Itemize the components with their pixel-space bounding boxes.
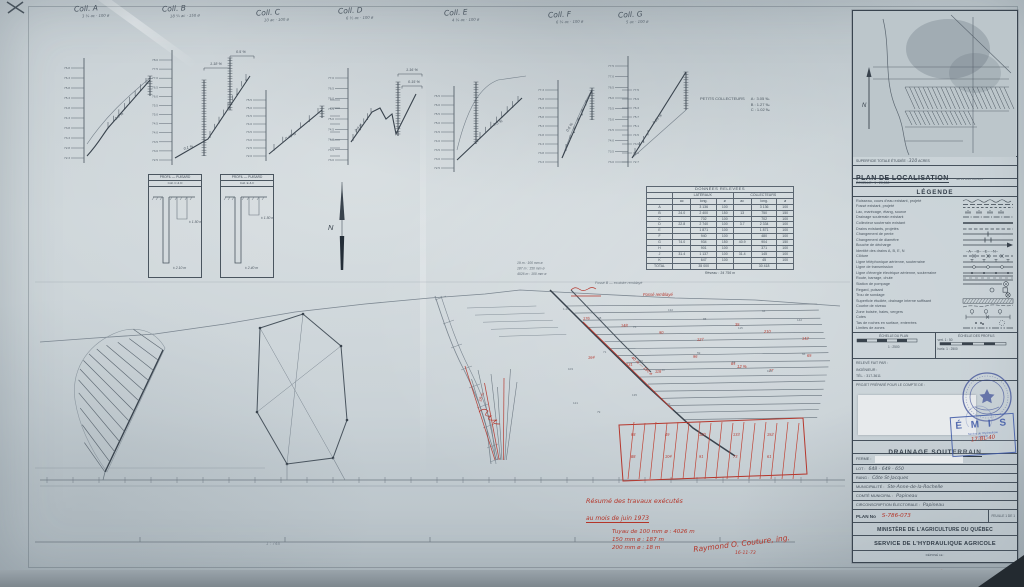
pencil-measurement: 121 — [573, 401, 578, 405]
right-lateral-ext — [475, 313, 545, 315]
elevation-tick-label: 76.8 — [538, 97, 544, 101]
drawing-shape — [1009, 299, 1012, 303]
legend-label: Station de pompage — [856, 282, 962, 286]
redacted-farm-name — [875, 456, 963, 463]
legend-label: Zone boisée, haies, vergers — [856, 310, 962, 314]
elevation-tick-label: 76.0 — [608, 96, 614, 100]
elevation-tick-label: 75.5 — [152, 103, 158, 107]
elevation-tick-label: 75.3 — [64, 96, 70, 100]
elevation-tick-label: 73.5 — [608, 149, 614, 153]
scanned-drainage-plan-sheet: { "profiles": { "charts": [ {"label":"Co… — [0, 0, 1024, 587]
red-block-drain — [628, 422, 634, 479]
red-block-drain — [683, 423, 689, 479]
drawing-shape — [1000, 299, 1003, 303]
pencil-measurement: 1.26 — [563, 307, 569, 311]
sheet-bottom-edge — [0, 570, 1024, 587]
lateral-node — [129, 102, 130, 103]
lateral-node — [227, 108, 228, 109]
elevation-tick-label: 73.0 — [152, 149, 158, 153]
red-measurement: 133 — [733, 432, 741, 437]
legend-label: Collecteur souterrain existant — [856, 221, 962, 225]
right-lateral-drain — [670, 403, 821, 405]
note-item: A : 3.05 ‰ — [751, 96, 770, 102]
elevation-tick-label: 74.8 — [64, 106, 70, 110]
plan-number-value: S-786-073 — [882, 513, 989, 519]
red-block-drain — [672, 422, 678, 479]
drawing-shape — [995, 259, 998, 262]
legend-label: Changement de diamètre — [856, 238, 962, 242]
legend-label: Courbe de niveau — [856, 304, 962, 308]
elevation-tick-label: 75.5 — [246, 98, 252, 102]
middle-field-outline — [257, 314, 347, 464]
drawing-shape — [976, 210, 982, 213]
localisation-map: N — [853, 11, 1017, 157]
survey-point — [340, 345, 343, 348]
lateral-node — [501, 117, 502, 118]
pencil-measurement: 115 — [738, 326, 743, 330]
ferme-label: FERME : — [856, 457, 871, 461]
drawing-shape — [987, 210, 993, 213]
red-measurement: 61 — [767, 454, 772, 459]
depose-row: DÉPOSÉ LE : — [853, 551, 1017, 560]
elevation-tick-label: 75.3 — [538, 124, 544, 128]
legend-label: Superficie étudiée, drainage interne suf… — [856, 299, 962, 303]
left-lateral-drain — [80, 369, 129, 421]
red-block-drain — [705, 423, 711, 479]
small-collectors-note: PETITS COLLECTEURS A : 3.05 ‰ B : 1.27 ‰… — [700, 96, 770, 113]
grade-label: 1.16 % — [406, 68, 418, 72]
circonscription-label: CIRCONSCRIPTION ÉLECTORALE : — [856, 503, 920, 507]
right-lateral-ext — [483, 320, 553, 322]
collector-profile-line — [351, 94, 416, 142]
elevation-tick-label: 73.5 — [434, 148, 440, 152]
middle-field-diagonals — [257, 314, 341, 464]
elevation-tick-label: 75.0 — [328, 117, 334, 121]
grade-label: 0.6 % — [565, 122, 574, 133]
pencil-scale-note: 1 : 744 — [266, 541, 280, 546]
elevation-tick-label: 75.5 — [434, 112, 440, 116]
lateral-node — [479, 137, 480, 138]
elevation-tick-label: 75.8 — [538, 115, 544, 119]
left-lateral-drain — [79, 380, 125, 431]
municipalite-row: MUNICIPALITÉ :Ste-Anne-de-la-Rochelle — [853, 483, 1017, 492]
drawing-shape — [1007, 259, 1010, 262]
circonscription-value: Papineau — [923, 503, 944, 508]
profile-scale-horiz: horiz. 1 : 2500 — [938, 347, 1016, 351]
elevation-tick-label: 74.5 — [608, 128, 614, 132]
drawing-shape — [991, 299, 994, 303]
dimension-bracket — [398, 74, 422, 77]
drawing-shape — [983, 259, 986, 262]
ferme-row: FERME : — [853, 454, 1017, 465]
elevation-tick-label: 76.3 — [64, 76, 70, 80]
legend-label: Ligne d'énergie électrique aérienne, sou… — [856, 271, 962, 275]
pencil-measurement: 103 — [568, 367, 573, 371]
right-lateral-drain — [583, 318, 821, 320]
legend-label: Drains existants, projetés — [856, 227, 962, 231]
grade-label: 0.5 % — [493, 119, 504, 127]
red-measurement: 120 — [699, 432, 707, 437]
survey-point — [302, 313, 305, 316]
red-measurement: 127 — [697, 337, 705, 342]
elevation-tick-label: 75.8 — [64, 86, 70, 90]
collector-profile-line — [562, 90, 592, 158]
red-block-drain — [782, 422, 788, 479]
legend-label: Ligne de transmission — [856, 265, 962, 269]
plan-number-row: PLAN No S-786-073 FEUILLE 1 DE 1 — [853, 510, 1017, 523]
elevation-tick-label: 72.3 — [64, 156, 70, 160]
pencil-note-line: 187 m : 150 mm ø — [517, 267, 545, 271]
pencil-ditch-note: Fossé B — exutoire remblayé — [595, 281, 642, 285]
north-label: N — [328, 223, 334, 232]
drawing-shape — [982, 299, 985, 303]
title-block-panel: N SUPERFICIE TOTALE ÉTUDIÉE : 310 ACRES … — [852, 10, 1018, 563]
elevation-tick-label: 77.3 — [538, 88, 544, 92]
elevation-tick-label: 72.5 — [434, 166, 440, 170]
red-measurement: 90 — [659, 330, 664, 335]
drawing-shape — [963, 305, 1013, 307]
drawing-shape — [973, 299, 976, 303]
right-lateral-drain — [675, 410, 819, 413]
right-lateral-drain — [596, 332, 823, 334]
legend-label: Identité des drains A, B, E, N — [856, 249, 962, 253]
right-lateral-drain — [605, 339, 826, 342]
survey-point — [256, 411, 259, 414]
right-lateral-drain — [653, 389, 823, 391]
drawing-shape — [983, 272, 985, 274]
elevation-tick-label: 76.0 — [152, 94, 158, 98]
elevation-tick-label: 75.5 — [608, 107, 614, 111]
legend-label: Limites de zones — [856, 326, 962, 330]
outlet-connector — [103, 472, 105, 480]
lateral-node — [512, 107, 513, 108]
profile-chart-canvas: 75.575.074.574.073.573.072.572.074.874.3… — [244, 22, 340, 164]
creek-line — [435, 296, 491, 464]
legend-row: Limites de zones — [856, 326, 1014, 332]
red-grade-label: 12 % — [737, 364, 747, 369]
comte-row: COMTÉ MUNICIPAL :Papineau — [853, 492, 1017, 501]
elevation-tick-label: 76.0 — [328, 97, 334, 101]
summary-item: Tuyau de 100 mm ø : 4026 m — [612, 528, 786, 536]
lateral-node — [581, 114, 582, 115]
pencil-measurement: 87 — [662, 368, 666, 372]
right-lateral-ext — [499, 334, 566, 336]
sheet-number: FEUILLE 1 DE 1 — [988, 510, 1017, 522]
lateral-node — [309, 121, 310, 122]
right-lateral-drain — [618, 353, 828, 356]
elevation-tick-label: 74.5 — [434, 130, 440, 134]
elevation-tick-label: 78.0 — [152, 58, 158, 62]
elevation-tick-label: 74.3 — [64, 116, 70, 120]
elevation-tick-label: 76.8 — [64, 66, 70, 70]
red-measurement: 176 — [583, 316, 591, 321]
elevation-tick-label: 77.5 — [608, 64, 614, 68]
legend-title: LÉGENDE — [853, 187, 1017, 197]
dim-label: ± 1.50 m — [261, 216, 273, 220]
plan-scale-bar — [855, 338, 919, 344]
elevation-tick-label: 73.8 — [64, 126, 70, 130]
legend-label: Clôture — [856, 254, 962, 258]
lateral-node — [236, 94, 237, 95]
lateral-node — [352, 139, 353, 140]
drawing-shape — [998, 309, 1002, 313]
corner-x-mark — [4, 0, 30, 16]
red-drain-block-outline — [619, 418, 807, 481]
drawing-shape — [985, 299, 988, 303]
field-boundary — [40, 290, 840, 342]
elevation-tick-label: 74.0 — [246, 122, 252, 126]
drawing-shape — [1003, 299, 1006, 303]
red-block-drain — [793, 423, 799, 479]
red-measurement: 148 — [621, 323, 629, 328]
elevation-tick-label: 73.3 — [64, 136, 70, 140]
lateral-node — [140, 90, 141, 91]
pencil-measurement: 142 — [797, 318, 802, 322]
elevation-tick-label: 77.0 — [608, 75, 614, 79]
studied-area-value: 310 — [909, 159, 918, 164]
elevation-tick-label: 73.5 — [152, 140, 158, 144]
lateral-node — [107, 127, 108, 128]
red-measurement: 142 — [802, 336, 810, 341]
drawing-shape — [995, 272, 997, 274]
left-lateral-drain — [129, 339, 158, 360]
elevation-tick-label: 76.5 — [328, 86, 334, 90]
elevation-tick-label: 75.5 — [328, 107, 334, 111]
right-lateral-drain — [626, 361, 830, 363]
pencil-measurement: 71 — [603, 350, 607, 354]
plan-number-label: PLAN No — [853, 514, 876, 519]
profile-chart-coll-g: Coll. G5 ac · 100 ø77.577.076.576.075.57… — [608, 12, 708, 174]
grade-label: 1.18 % — [210, 62, 222, 66]
red-ditch-label: Fossé remblayé — [643, 292, 673, 297]
right-lateral-drain — [661, 395, 822, 398]
creek-hatch — [435, 296, 446, 300]
rang-value: Côte St-Jacques — [872, 476, 908, 481]
elevation-tick-label: 76.5 — [608, 85, 614, 89]
survey-point — [259, 327, 262, 330]
legend-label: Tas de roches en surface, enterrées — [856, 321, 962, 325]
studied-area-line: SUPERFICIE TOTALE ÉTUDIÉE : 310 ACRES — [853, 157, 1017, 166]
elevation-tick-label: 73.3 — [538, 160, 544, 164]
elevation-tick-label: 74.0 — [152, 131, 158, 135]
plan-scale-value: 1 : 2500 — [855, 345, 933, 349]
note-item: C : 1.02 ‰ — [751, 107, 770, 113]
elevation-tick-label: 77.5 — [152, 67, 158, 71]
drawing-shape — [975, 322, 977, 324]
note-items: A : 3.05 ‰ B : 1.27 ‰ C : 1.02 ‰ — [751, 96, 770, 113]
elevation-tick-label: 73.0 — [328, 158, 334, 162]
lateral-node — [218, 122, 219, 123]
ground-line — [457, 76, 526, 150]
red-measurement: 104 — [665, 454, 673, 459]
drawing-shape — [963, 200, 1011, 203]
elevation-tick-label: 73.8 — [538, 151, 544, 155]
right-lateral-ext — [467, 306, 536, 308]
lot-row: LOT :648 - 649 - 650 — [853, 465, 1017, 474]
red-measurement: 210 — [763, 329, 772, 334]
drawing-shape — [964, 299, 967, 303]
municipalite-label: MUNICIPALITÉ : — [856, 485, 884, 489]
legend-label: Cotes — [856, 315, 962, 319]
lot-label: LOT : — [856, 467, 865, 471]
note-label: PETITS COLLECTEURS — [700, 96, 745, 113]
right-lateral-drain — [648, 381, 825, 384]
legend-label: Regard, puisard — [856, 288, 962, 292]
right-lateral-drain — [640, 375, 827, 377]
elevation-tick-label: 73.0 — [246, 138, 252, 142]
pencil-measurement: 135 — [632, 393, 637, 397]
right-lateral-ext — [491, 327, 558, 329]
elevation-tick-label: 74.5 — [152, 122, 158, 126]
drawing-shape — [979, 299, 982, 303]
pencil-measurement: 59 — [697, 351, 701, 355]
legend-label: Drainage souterrain existant — [856, 215, 962, 219]
red-measurement: 49 — [665, 432, 670, 437]
elevation-tick-label: 76.0 — [434, 103, 440, 107]
elevation-tick-label: 77.0 — [328, 76, 334, 80]
summary-line: au mois de juin 1973 — [586, 515, 649, 523]
red-block-drain — [639, 423, 645, 479]
grade-label: 0.45 % — [285, 132, 298, 141]
elevation-tick-label: 72.5 — [246, 146, 252, 150]
legend-label: Bouche de décharge — [856, 243, 962, 247]
ministere-row: MINISTÈRE DE L'AGRICULTURE DU QUÉBEC — [853, 523, 1017, 536]
right-main-collector — [550, 290, 735, 456]
pencil-measurement: 79 — [597, 410, 601, 414]
elevation-tick-label: 73.5 — [328, 148, 334, 152]
localisation-map-drawing: N — [853, 11, 1016, 157]
scale-bars: ÉCHELLE DU PLAN 1 : 2500 ÉCHELLE DES PRO… — [853, 333, 1017, 359]
legend-label: Route, barrage, chute — [856, 276, 962, 280]
signature-date: 16-11-73 — [735, 551, 756, 556]
studied-area-label: SUPERFICIE TOTALE ÉTUDIÉE : — [856, 159, 908, 163]
red-block-drain — [650, 422, 656, 479]
red-measurement: 131 — [626, 362, 633, 367]
elevation-tick-label: 77.0 — [152, 76, 158, 80]
drawing-shape — [988, 299, 991, 303]
elevation-tick-label: 74.3 — [538, 142, 544, 146]
drawing-shape — [1005, 283, 1007, 285]
lateral-node — [367, 119, 368, 120]
lateral-node — [490, 127, 491, 128]
legend-label: Fossé existant, projeté — [856, 204, 962, 208]
elevation-tick-label: 74.5 — [246, 114, 252, 118]
elevation-tick-label: 76.5 — [434, 94, 440, 98]
localisation-scale: ÉCHELLE : 1 : 20,000 — [853, 179, 1017, 187]
comte-value: Papineau — [896, 494, 917, 499]
drawing-shape — [1003, 287, 1007, 291]
grade-label: 0.25 % — [652, 113, 664, 125]
elevation-tick-label: 76.3 — [538, 106, 544, 110]
dimension-bracket — [402, 86, 422, 89]
red-measurement: 73 — [733, 454, 738, 459]
red-measurement: 65 — [807, 353, 812, 358]
pencil-note-line: 4026 m : 100 mm ø — [517, 272, 546, 276]
drawing-shape — [976, 299, 979, 303]
drawing-shape — [965, 210, 971, 213]
red-block-drain — [749, 423, 755, 479]
left-lateral-drain — [118, 342, 154, 370]
lateral-node — [209, 136, 210, 137]
pencil-measurement: 94 — [732, 360, 736, 364]
legend-label: Ruisseau, cours d'eau existant, projeté — [856, 199, 962, 203]
pencil-measurement: 132 — [668, 308, 673, 312]
rang-label: RANG : — [856, 476, 869, 480]
red-measurement: 58 — [631, 432, 636, 437]
elevation-tick-label: 74.0 — [434, 139, 440, 143]
elevation-tick-label: 72.5 — [152, 158, 158, 162]
drawing-shape — [1006, 299, 1009, 303]
drawing-shape — [1007, 272, 1009, 274]
right-lateral-drain — [610, 347, 827, 349]
profile-chart-coll-e: Coll. E4 ¼ ac · 100 ø76.576.075.575.074.… — [424, 10, 542, 174]
red-measurement: 164 — [588, 355, 596, 360]
studied-area-unit: ACRES — [918, 159, 930, 163]
drawing-shape — [971, 259, 974, 262]
summary-line: Résumé des travaux exécutés — [586, 497, 786, 505]
red-measurement: 88 — [631, 454, 636, 459]
drawing-shape — [984, 309, 988, 313]
localisation-title-row: PLAN DE LOCALISATION No 31 B/16 100-201 — [853, 166, 1017, 179]
pencil-measurement: 88 — [703, 317, 707, 321]
elevation-tick-label: 74.0 — [608, 139, 614, 143]
plan-scale-box: ÉCHELLE DU PLAN 1 : 2500 — [853, 333, 936, 358]
pencil-measurement: 108 — [767, 369, 772, 373]
elevation-tick-label: 75.0 — [608, 117, 614, 121]
profile-chart-coll-c: Coll. C10 ac · 100 ø75.575.074.574.073.5… — [244, 10, 340, 166]
pencil-measurement: 92 — [667, 402, 671, 406]
red-lateral-drain — [503, 378, 504, 460]
elevation-tick-label: 76.5 — [152, 85, 158, 89]
red-measurement: 91 — [699, 454, 704, 459]
municipalite-value: Ste-Anne-de-la-Rochelle — [887, 485, 942, 490]
drawing-shape — [1001, 266, 1004, 269]
drawing-shape — [990, 288, 994, 292]
drawing-shape — [970, 309, 974, 313]
drawing-shape — [994, 299, 997, 303]
pencil-measurement: 76 — [633, 325, 637, 329]
drawing-shape — [966, 315, 1010, 319]
circonscription-row: CIRCONSCRIPTION ÉLECTORALE :Papineau — [853, 501, 1017, 510]
legend-list: Ruisseau, cours d'eau existant, projetéF… — [853, 197, 1017, 333]
left-lateral-drain — [84, 443, 105, 472]
elevation-tick-label: 75.0 — [246, 106, 252, 110]
pencil-note-line: 19 m : 100 mm ø — [517, 261, 543, 265]
elevation-tick-label: 73.5 — [246, 130, 252, 134]
drawing-shape — [987, 266, 990, 269]
left-lateral-drain — [89, 354, 139, 401]
profile-scale-box: ÉCHELLE DES PROFILS vert. 1 : 50 horiz. … — [936, 333, 1018, 358]
red-lateral-drain — [485, 383, 500, 460]
pencil-measurement: 66 — [802, 352, 806, 356]
drawing-shape — [980, 322, 982, 324]
lateral-node — [573, 132, 574, 133]
lateral-drain — [505, 369, 511, 460]
elevation-tick-label: 72.0 — [246, 154, 252, 158]
survey-point — [346, 419, 349, 422]
drawing-shape — [998, 210, 1004, 213]
rang-row: RANG :Côte St-Jacques — [853, 474, 1017, 483]
lot-value: 648 - 649 - 650 — [868, 467, 903, 472]
map-north-label: N — [862, 103, 867, 109]
drawing-shape — [967, 299, 970, 303]
elevation-tick-label: 73.0 — [434, 157, 440, 161]
elevation-tick-label: 74.5 — [328, 127, 334, 131]
creek-hatch — [443, 320, 454, 324]
lateral-node — [273, 149, 274, 150]
profile-chart-canvas: 77.076.576.075.575.074.574.073.573.00.8 … — [328, 20, 432, 168]
profile-scale-bar — [938, 342, 1008, 346]
